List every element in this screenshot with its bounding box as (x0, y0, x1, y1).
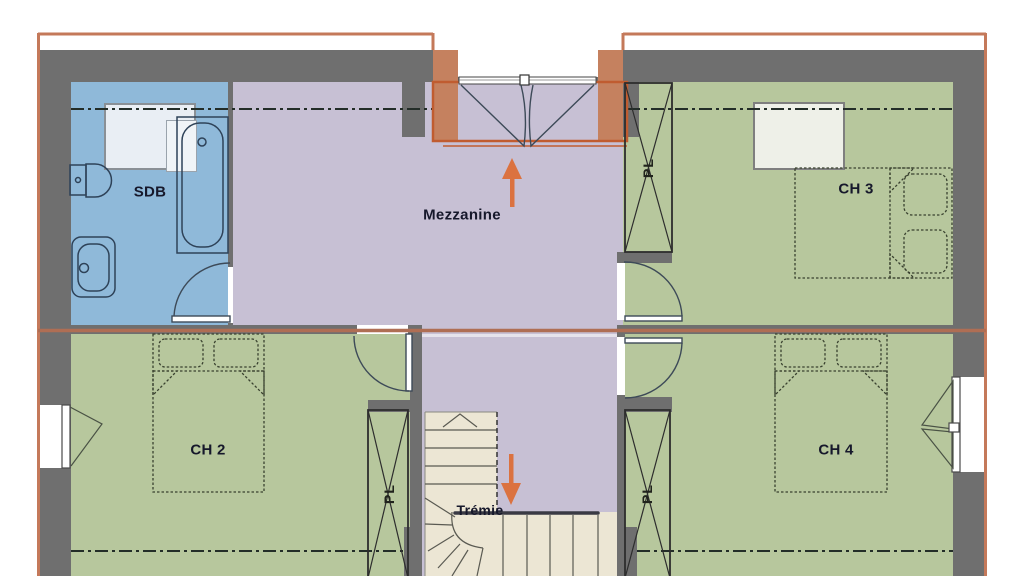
bedroom4-door-opening (617, 337, 625, 395)
bedroom3-door-opening (617, 263, 625, 320)
wall-right (953, 82, 985, 576)
label-closet-bedroom3: PL (640, 158, 656, 178)
label-stair-opening: Trémie (457, 502, 504, 518)
recess-jamb-right (598, 50, 623, 141)
label-bedroom3: CH 3 (838, 181, 873, 198)
recess-jamb-left (433, 50, 458, 141)
wall-stub-left-of-recess (402, 82, 425, 137)
roof-window-bedroom3 (753, 102, 845, 170)
wall-cap-closet3 (617, 397, 672, 412)
bedroom2-window-opening (40, 405, 63, 468)
label-closet-bedroom4: PL (639, 484, 655, 504)
wall-stub-right-of-recess (623, 82, 639, 137)
label-bedroom2: CH 2 (190, 442, 225, 459)
label-bathroom: SDB (134, 184, 167, 201)
wall-center-left-base (404, 527, 422, 576)
wall-left (40, 82, 71, 576)
bathroom-door-opening (228, 267, 233, 323)
wall-cap-closet1 (617, 252, 672, 263)
label-closet-bedroom2: PL (381, 484, 397, 504)
stairs-upper-flight (425, 412, 497, 576)
wall-cap-closet2 (368, 400, 422, 412)
label-mezzanine: Mezzanine (423, 207, 501, 224)
stairs-lower-flight (497, 512, 617, 576)
bedroom4-window-opening (960, 377, 985, 472)
room-bedroom4 (625, 334, 953, 576)
ridge-beam-highlight (422, 334, 617, 337)
label-bedroom4: CH 4 (818, 442, 853, 459)
wall-mid-right (617, 325, 953, 334)
mezzanine-door-recess (458, 50, 598, 77)
wall-center-right-base (617, 527, 637, 576)
bedroom2-door-opening (357, 325, 408, 334)
room-bedroom2 (71, 334, 412, 576)
roof-window-bathroom-overlap (166, 120, 197, 172)
floor-plan: SDB Mezzanine CH 3 CH 2 CH 4 Trémie PL P… (0, 0, 1024, 576)
